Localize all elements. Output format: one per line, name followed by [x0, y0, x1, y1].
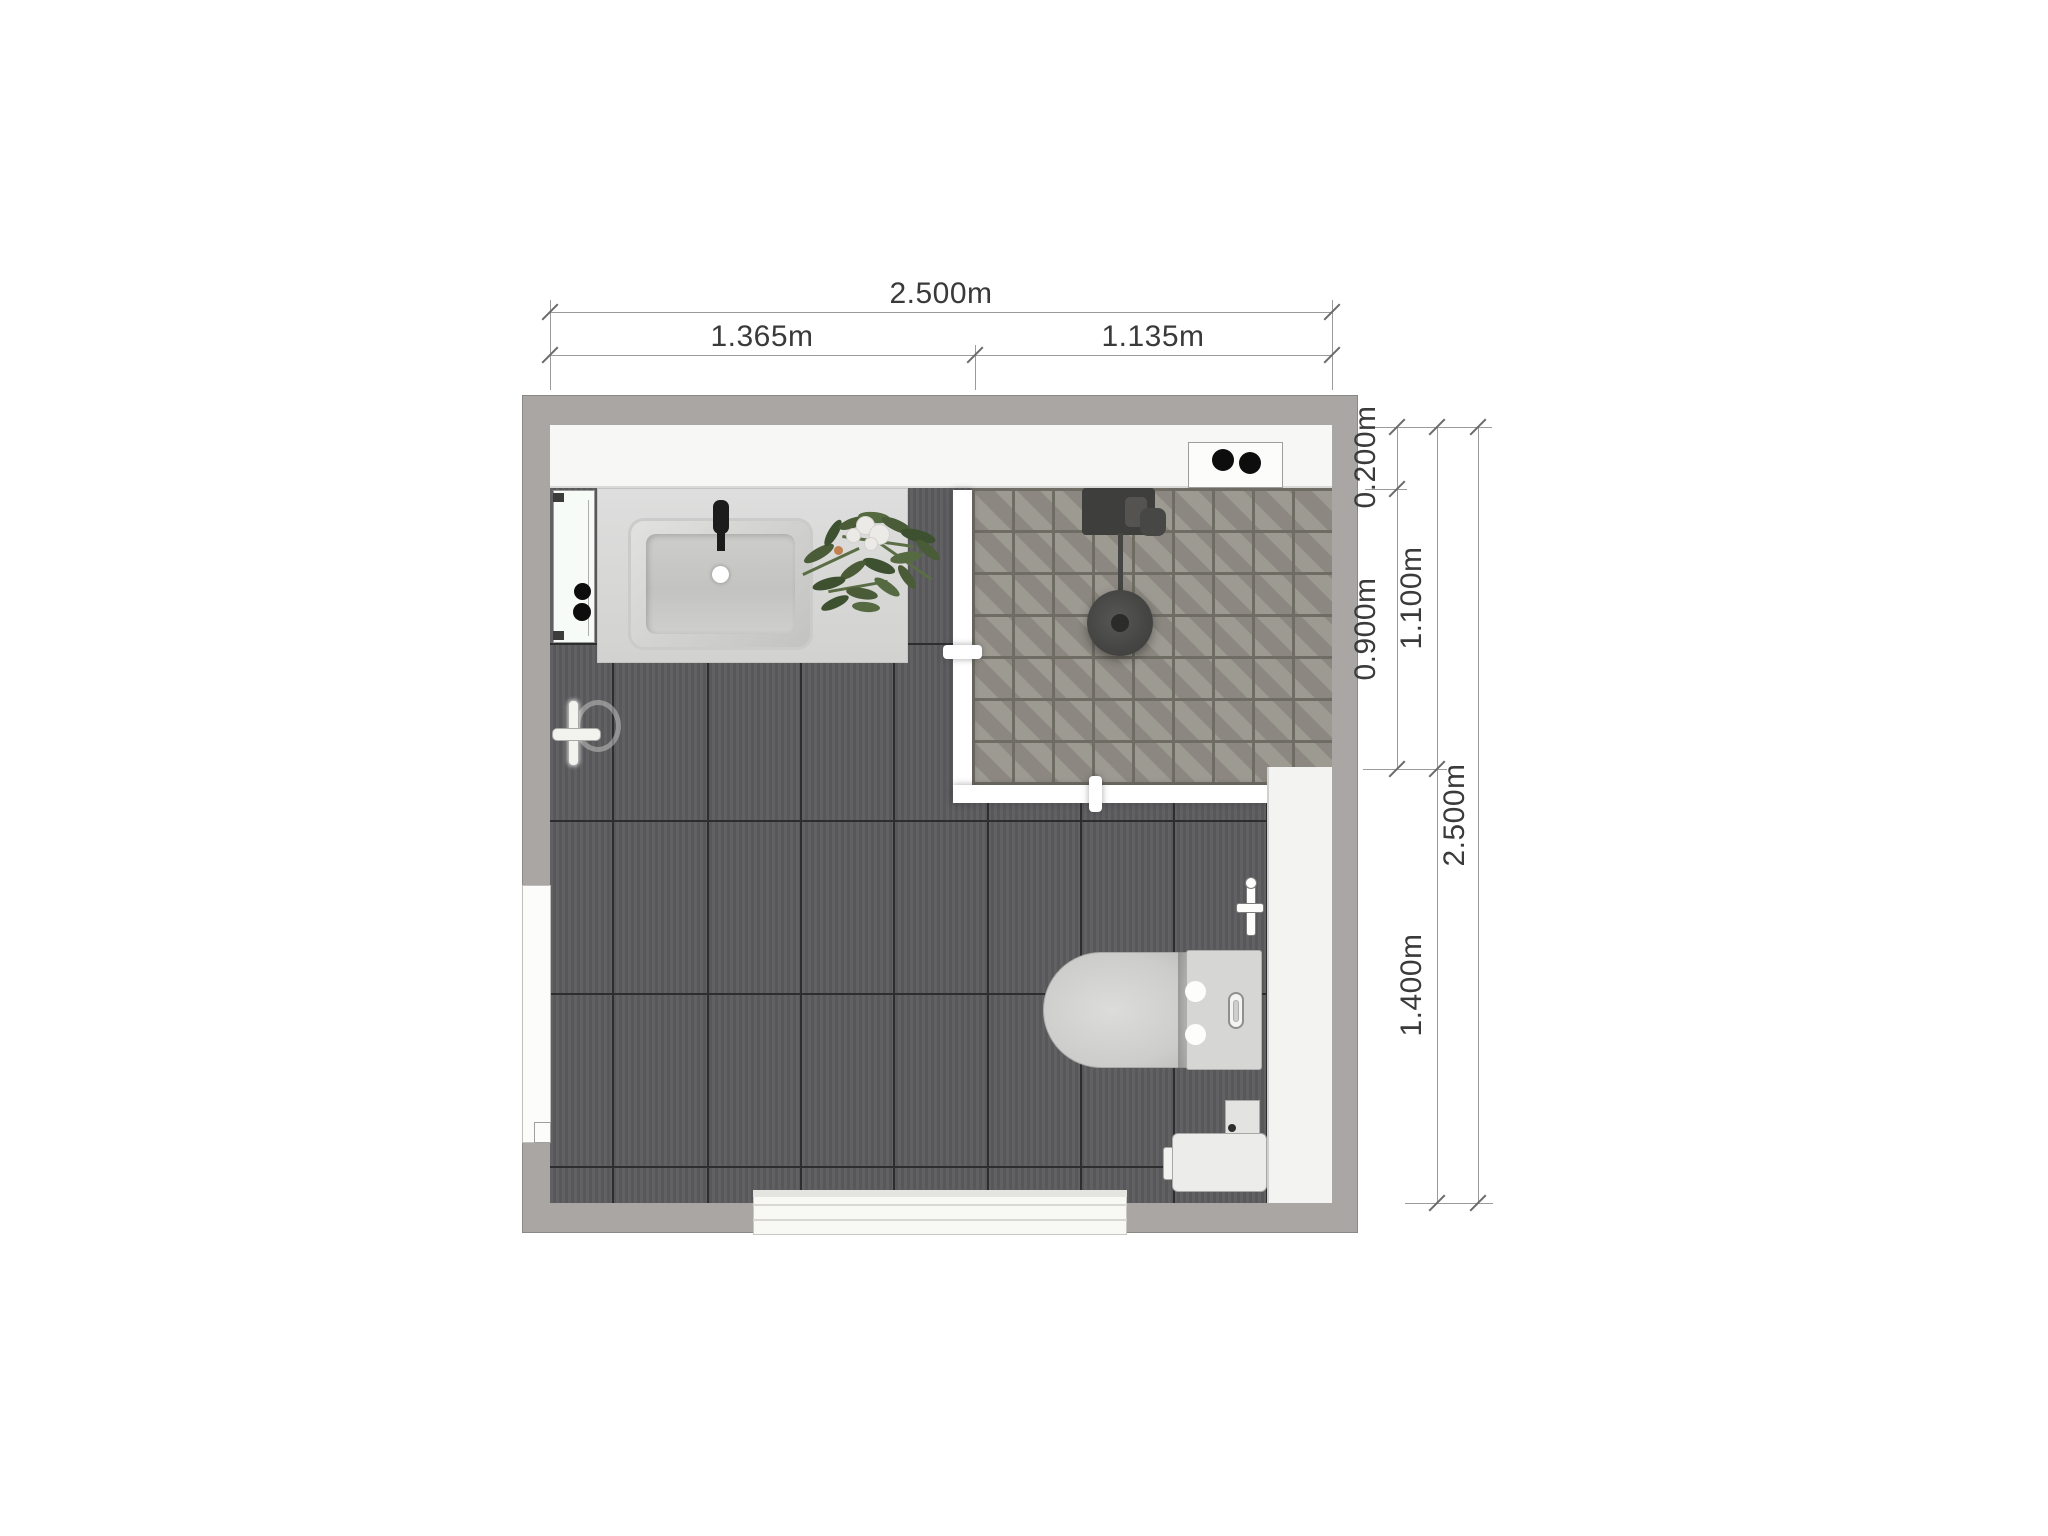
- cabinet-knob: [573, 603, 591, 621]
- dim-top-total: 2.500m: [889, 277, 992, 311]
- dimension-line: [1365, 427, 1492, 428]
- dim-right-1100: 1.100m: [1395, 546, 1429, 649]
- toilet-flush-slot: [1233, 1000, 1239, 1022]
- glass-partition-horizontal: [953, 785, 1268, 803]
- shower-rod: [1118, 533, 1123, 595]
- threshold-strip: [753, 1190, 1127, 1197]
- threshold-line: [753, 1204, 1127, 1206]
- towel-swirl: [575, 700, 621, 752]
- glass-handle: [943, 645, 982, 659]
- cabinet-hinge: [553, 493, 564, 502]
- window-notch: [534, 1122, 551, 1143]
- glass-handle: [1089, 776, 1102, 812]
- plant-flower: [846, 528, 861, 543]
- dimension-line: [1478, 427, 1479, 1203]
- water-valve-knob: [1245, 877, 1257, 889]
- floor-plan-canvas: { "title": "bathroom-floor-plan", "dimen…: [0, 0, 2048, 1536]
- spotlight-niche: [1188, 442, 1283, 488]
- dim-right-0900: 0.900m: [1349, 577, 1383, 680]
- sink-drain: [712, 566, 729, 583]
- faucet-spout: [717, 531, 725, 551]
- dimension-line: [1332, 300, 1333, 390]
- dimension-line: [550, 355, 1332, 356]
- toilet-bowl: [1043, 952, 1195, 1068]
- dim-right-0200: 0.200m: [1349, 405, 1383, 508]
- dimension-line: [1405, 1203, 1493, 1204]
- window-opening: [522, 885, 551, 1143]
- shower-head-center: [1111, 614, 1129, 632]
- threshold-line: [753, 1219, 1127, 1221]
- dimension-line: [550, 312, 1332, 313]
- plant-accent: [834, 546, 843, 555]
- faucet: [713, 500, 729, 534]
- dim-top-right: 1.135m: [1101, 320, 1204, 354]
- floor-grout-line: [550, 820, 1332, 822]
- spotlight-dot: [1212, 449, 1234, 471]
- spotlight-dot: [1239, 452, 1261, 474]
- storage-unit-latch: [1228, 1124, 1236, 1132]
- cabinet-knob: [574, 583, 591, 600]
- dimension-line: [550, 300, 551, 390]
- dim-right-total: 2.500m: [1438, 763, 1472, 866]
- side-ledge: [1267, 767, 1332, 1203]
- towel-hook-bar: [552, 728, 601, 741]
- plant-flower: [864, 537, 878, 551]
- dim-right-1400: 1.400m: [1395, 933, 1429, 1036]
- water-valve-bar: [1236, 903, 1264, 913]
- toilet-hinge: [1185, 1024, 1206, 1045]
- toilet-hinge: [1185, 981, 1206, 1002]
- dim-top-left: 1.365m: [710, 320, 813, 354]
- toilet-tank: [1186, 950, 1262, 1070]
- cabinet-hinge: [553, 631, 564, 640]
- hand-shower: [1140, 508, 1166, 536]
- storage-unit: [1172, 1133, 1267, 1192]
